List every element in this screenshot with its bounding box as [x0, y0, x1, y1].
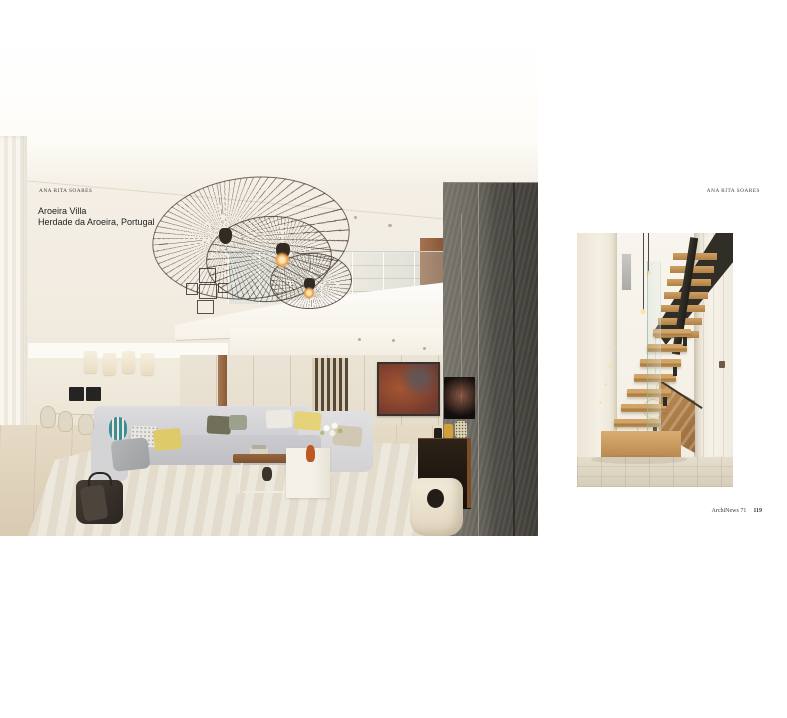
dining-chair — [40, 406, 56, 428]
living-room-photo — [0, 40, 538, 536]
books — [252, 445, 266, 449]
abstract-painting — [377, 362, 440, 416]
ceiling-spotlight — [388, 224, 392, 227]
stair-slat-screen — [312, 358, 348, 412]
page-number: 119 — [753, 508, 762, 514]
project-title-block: Aroeira Villa Herdade da Aroeira, Portug… — [38, 206, 155, 227]
ceiling-spotlight — [423, 347, 426, 350]
stair-wall-light — [604, 383, 607, 386]
side-stool-teal — [109, 417, 127, 440]
bag-handle — [88, 472, 112, 486]
magazine-spread: ANA RITA SOARES Aroeira Villa Herdade da… — [0, 0, 787, 718]
lamp-hub — [219, 228, 232, 244]
pendant-lamp-kitchen — [103, 353, 116, 375]
ceiling-spotlight — [358, 338, 361, 341]
stair-wall-light — [599, 401, 602, 404]
dining-chair — [58, 411, 73, 432]
floor-shadow — [591, 455, 687, 464]
byline-right: ANA RITA SOARES — [577, 188, 760, 194]
console-vase-yellow — [444, 424, 453, 439]
vase-dark — [262, 467, 272, 481]
window-curtain — [0, 136, 27, 432]
stairwell-window — [621, 253, 632, 291]
pendant-lamp-kitchen — [122, 351, 135, 373]
project-title: Aroeira Villa — [38, 206, 155, 217]
glass-balustrade — [647, 261, 661, 449]
flower-bouquet — [319, 421, 346, 438]
sculpture-hole — [427, 489, 444, 508]
wall-tv — [444, 377, 475, 419]
pendant-lamp-kitchen — [141, 353, 154, 375]
throw-grey — [110, 437, 150, 472]
tread-support-post — [673, 367, 677, 376]
staircase-photo — [577, 233, 733, 487]
ceiling-spotlight — [392, 339, 395, 342]
lamp-bulb-glow — [303, 287, 315, 299]
stair-wall-light — [614, 347, 617, 350]
console-jar — [455, 421, 467, 439]
console-wood-rim — [467, 438, 471, 508]
page-folio: ArchiNews 71119 — [577, 508, 762, 514]
byline-left: ANA RITA SOARES — [39, 188, 92, 194]
wall-thermostat — [719, 361, 725, 368]
ceiling-spotlight — [354, 216, 357, 219]
stone-seam — [478, 183, 479, 536]
lamp-bulb-glow — [274, 252, 290, 268]
project-location: Herdade da Aroeira, Portugal — [38, 217, 155, 228]
stone-seam — [513, 183, 515, 536]
stairwell-left-wall — [577, 233, 617, 459]
pendant-bulb — [640, 308, 646, 315]
cushion-olive — [207, 415, 232, 434]
cushion-yellow-2 — [293, 411, 321, 431]
pendant-cord — [643, 233, 644, 310]
cushion-sage — [229, 415, 247, 430]
tread-support-post — [663, 397, 667, 406]
gallery-wall-frame — [197, 300, 214, 314]
tread-support-post — [683, 337, 687, 346]
cushion-yellow — [153, 428, 182, 451]
kitchen-screen — [69, 387, 84, 401]
cushion-cream — [266, 409, 293, 428]
bag-flap — [79, 484, 108, 521]
stair-wall-light — [609, 365, 612, 368]
pendant-lamp-kitchen — [84, 351, 97, 373]
vase-orange — [306, 445, 315, 462]
stair-landing-platform — [601, 431, 681, 458]
magazine-issue: ArchiNews 71 — [712, 508, 747, 514]
kitchen-screen — [86, 387, 101, 401]
